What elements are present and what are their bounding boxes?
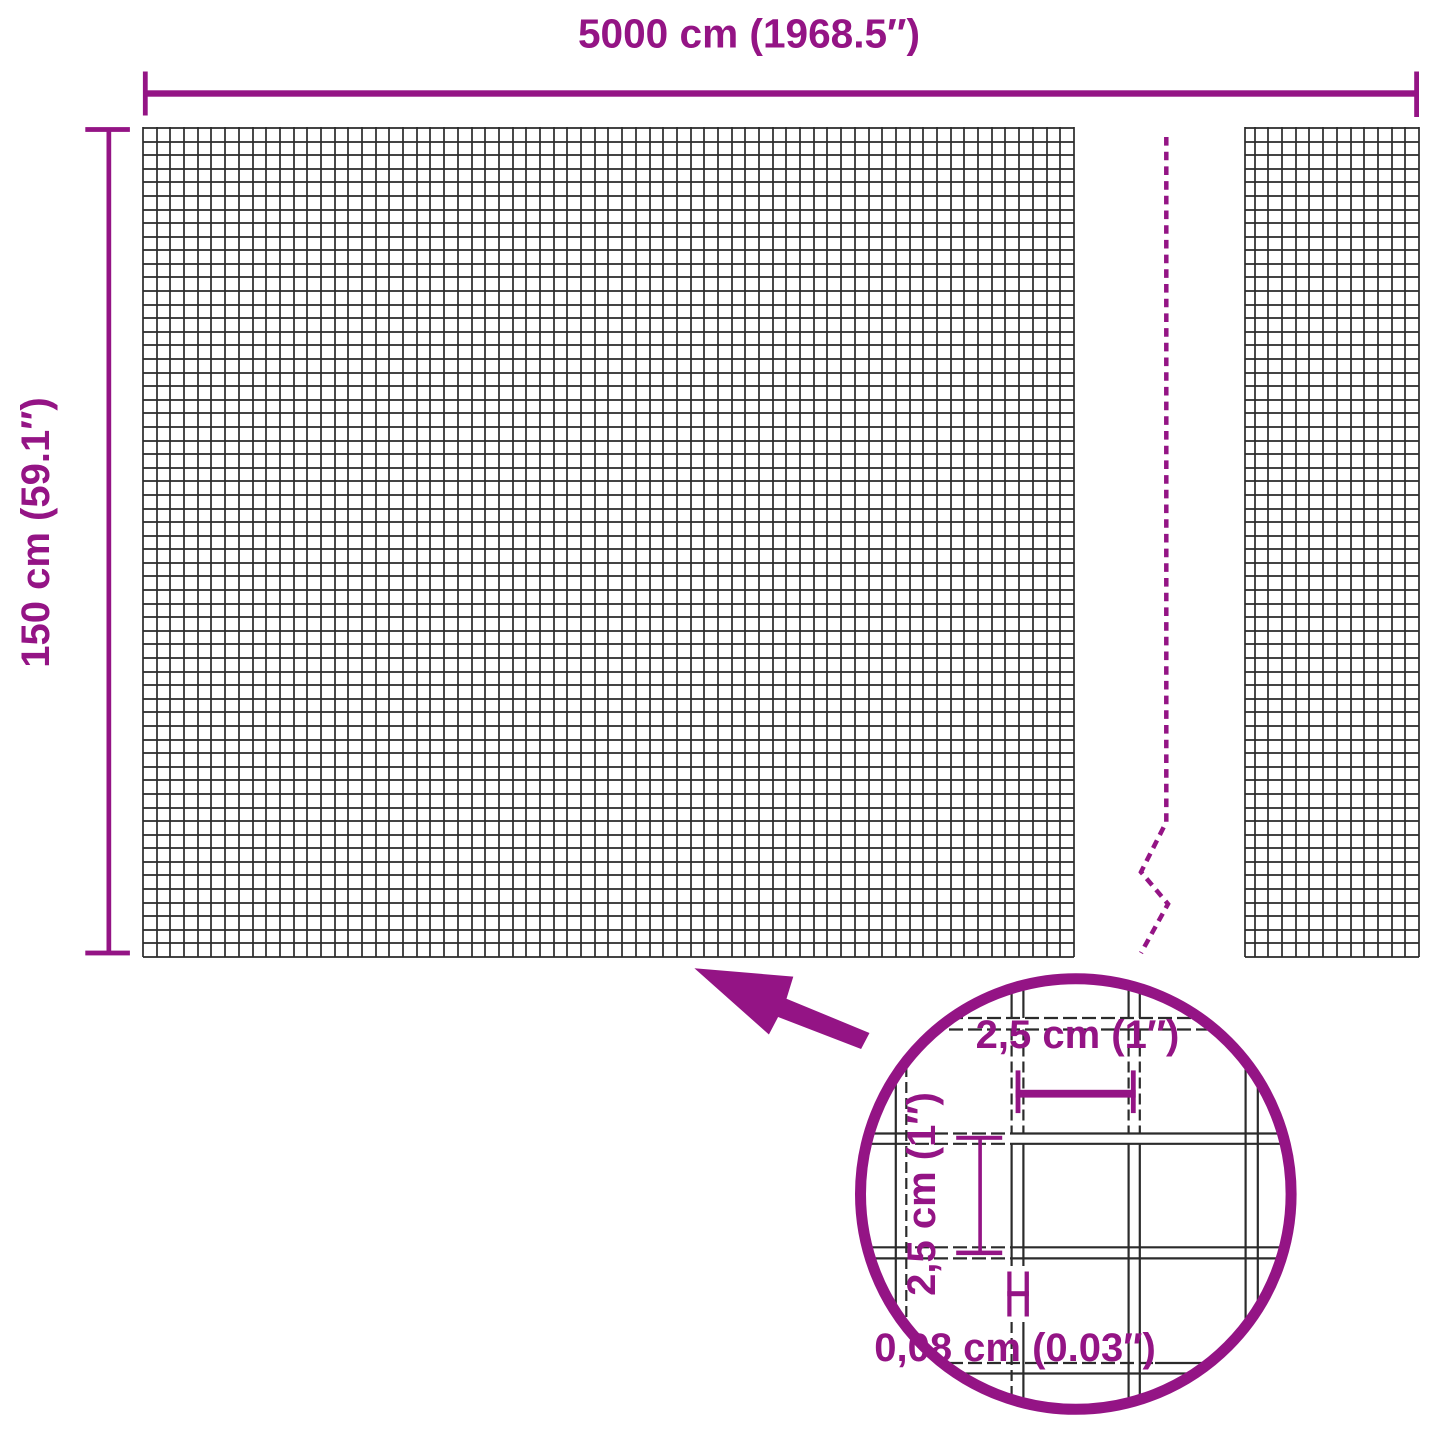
svg-text:2,5 cm (1″): 2,5 cm (1″) (976, 1013, 1180, 1057)
svg-text:2,5 cm (1″): 2,5 cm (1″) (900, 1092, 944, 1296)
svg-text:150 cm (59.1″): 150 cm (59.1″) (14, 397, 58, 667)
svg-text:5000 cm (1968.5″): 5000 cm (1968.5″) (578, 11, 920, 57)
